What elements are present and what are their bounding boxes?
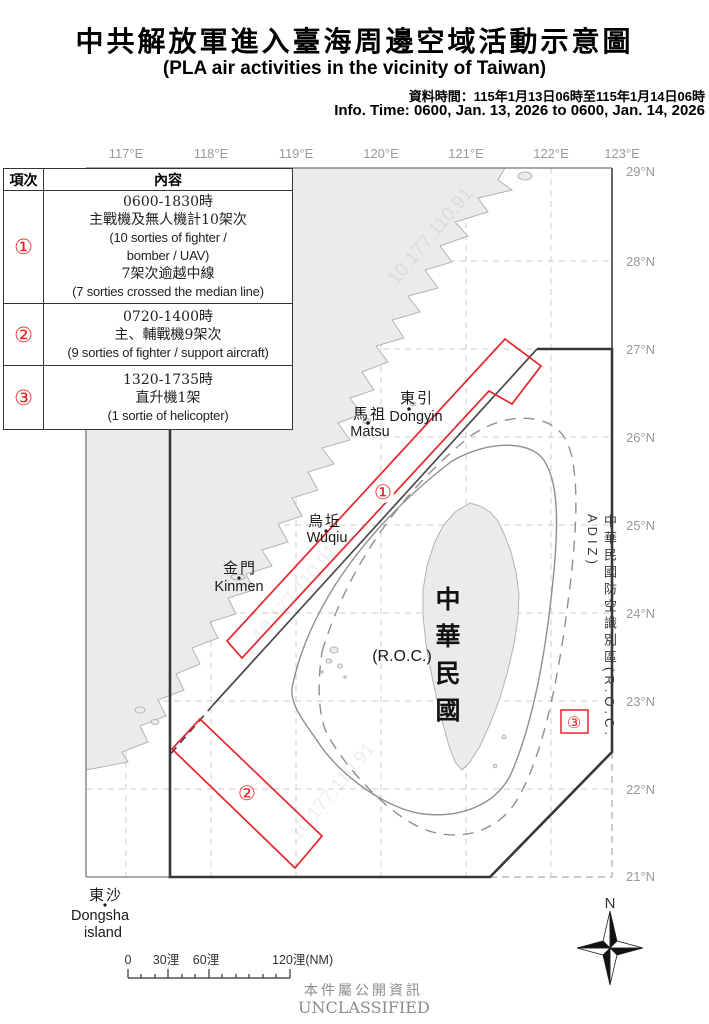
svg-text:10.177.110.91: 10.177.110.91 <box>286 739 379 845</box>
row1-line: 主戰機及無人機計10架次 <box>89 211 247 229</box>
classification-zh: 本件屬公開資訊 <box>304 983 423 999</box>
svg-text:25°N: 25°N <box>626 518 655 533</box>
svg-text:60浬: 60浬 <box>193 953 219 967</box>
table-header-index: 項次 <box>4 169 44 191</box>
svg-text:122°E: 122°E <box>533 146 569 161</box>
row1-line: 7架次逾越中線 <box>122 265 215 283</box>
activity-marker-1: ① <box>374 482 392 504</box>
svg-text:120°E: 120°E <box>363 146 399 161</box>
svg-text:21°N: 21°N <box>626 869 655 884</box>
dongsha-label-en2: island <box>84 925 122 941</box>
dongyin-label-zh: 東引 <box>400 389 434 407</box>
coastal-islet <box>151 720 159 725</box>
row1-line: (7 sorties crossed the median line) <box>72 283 264 301</box>
table-header-content: 內容 <box>44 169 292 191</box>
matsu-label-zh: 馬祖 <box>353 405 387 423</box>
svg-text:24°N: 24°N <box>626 606 655 621</box>
svg-text:121°E: 121°E <box>448 146 484 161</box>
row3-index: ③ <box>4 366 44 429</box>
svg-text:119°E: 119°E <box>279 146 314 161</box>
row2-line: 0720-1400時 <box>123 308 213 326</box>
row3-line: 1320-1735時 <box>123 371 213 389</box>
svg-text:0: 0 <box>125 953 132 967</box>
scale-bar-labels: 0 30浬 60浬 120浬(NM) <box>125 953 334 967</box>
longitude-labels: 117°E 118°E 119°E 120°E 121°E 122°E 123°… <box>109 146 640 161</box>
kinmen-label-zh: 金門 <box>223 559 257 577</box>
svg-text:30浬: 30浬 <box>153 953 179 967</box>
kinmen-label-en: Kinmen <box>214 579 263 595</box>
coastal-islet <box>518 172 532 180</box>
row2-content: 0720-1400時 主、輔戰機9架次 (9 sorties of fighte… <box>44 304 292 366</box>
classification-en: UNCLASSIFIED <box>298 998 430 1017</box>
row3-content: 1320-1735時 直升機1架 (1 sortie of helicopter… <box>44 366 292 429</box>
row3-line: 直升機1架 <box>136 389 201 407</box>
roc-vertical-label: 中華民國 <box>428 586 464 746</box>
dongyin-label-en: Dongyin <box>389 409 442 425</box>
scale-bar <box>128 969 290 978</box>
row1-line: bomber / UAV) <box>127 247 209 265</box>
offshore-islet <box>502 735 506 739</box>
row2-line: (9 sorties of fighter / support aircraft… <box>67 344 268 362</box>
coastal-islet <box>135 707 145 713</box>
svg-text:120浬(NM): 120浬(NM) <box>272 953 333 967</box>
info-time-en: Info. Time: 0600, Jan. 13, 2026 to 0600,… <box>0 102 705 119</box>
svg-text:28°N: 28°N <box>626 254 655 269</box>
row1-line: (10 sorties of fighter / <box>109 229 226 247</box>
pla-activity-map-page: 10.177.110.91 10.177.110.91 10.177.110.9… <box>0 0 709 1024</box>
row1-line: 0600-1830時 <box>123 193 213 211</box>
median-line-dashed-extension <box>168 705 213 757</box>
dongsha-dot <box>103 903 106 906</box>
activity-marker-3: ③ <box>567 715 581 732</box>
row1-index: ① <box>4 191 44 304</box>
svg-text:26°N: 26°N <box>626 430 655 445</box>
svg-text:118°E: 118°E <box>194 146 229 161</box>
latitude-labels: 29°N 28°N 27°N 26°N 25°N 24°N 23°N 22°N … <box>626 164 655 884</box>
svg-text:27°N: 27°N <box>626 342 655 357</box>
svg-text:123°E: 123°E <box>604 146 640 161</box>
activity-legend-table: 項次 內容 ① 0600-1830時 主戰機及無人機計10架次 (10 sort… <box>3 168 293 430</box>
adiz-vertical-label: 中華民國防空識別區(R.O.C. ADIZ) <box>585 514 619 774</box>
taiwan-strait-map: 10.177.110.91 10.177.110.91 10.177.110.9… <box>0 0 709 1024</box>
classification-footer: 本件屬公開資訊 UNCLASSIFIED <box>298 983 430 1017</box>
matsu-label-en: Matsu <box>350 424 390 440</box>
compass-rose: N <box>577 895 643 985</box>
svg-text:117°E: 117°E <box>109 146 144 161</box>
compass-north-label: N <box>605 895 616 912</box>
page-title-en: (PLA air activities in the vicinity of T… <box>0 58 709 80</box>
activity-marker-2: ② <box>238 783 256 805</box>
dongsha-label-zh: 東沙 <box>89 886 123 904</box>
wuqiu-label-zh: 烏坵 <box>308 512 342 530</box>
offshore-islet <box>493 764 497 768</box>
svg-text:23°N: 23°N <box>626 694 655 709</box>
roc-paren-label: (R.O.C.) <box>372 648 432 665</box>
row2-line: 主、輔戰機9架次 <box>115 326 222 344</box>
dongsha-label-en1: Dongsha <box>71 908 130 924</box>
row2-index: ② <box>4 304 44 366</box>
row3-line: (1 sortie of helicopter) <box>108 407 229 425</box>
wuqiu-label-en: Wuqiu <box>307 530 348 546</box>
svg-text:22°N: 22°N <box>626 782 655 797</box>
penghu-islands <box>321 647 346 678</box>
page-title-zh: 中共解放軍進入臺海周邊空域活動示意圖 <box>0 20 709 60</box>
svg-text:29°N: 29°N <box>626 164 655 179</box>
row1-content: 0600-1830時 主戰機及無人機計10架次 (10 sorties of f… <box>44 191 292 304</box>
